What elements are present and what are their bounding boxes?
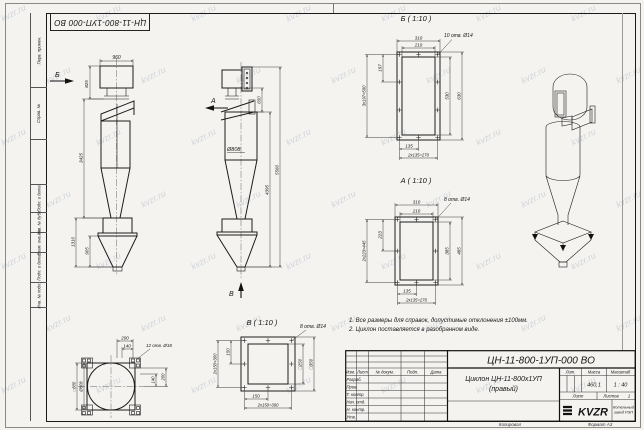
sheets-label: Листов	[602, 394, 619, 399]
dim-label: 210	[412, 209, 421, 214]
dim-label: 150	[252, 394, 260, 399]
col-header: Лист	[356, 370, 368, 375]
base-view-geometry	[78, 355, 144, 418]
dim-label: 630	[457, 92, 462, 100]
section-v-geometry	[241, 337, 295, 391]
dim-label: 905	[85, 247, 90, 255]
dim-label: 310	[413, 200, 421, 205]
side-view-drawing: Ø808 650 4395 5560 В	[200, 50, 295, 305]
dim-label: 150	[226, 348, 231, 356]
dim-label: 140	[123, 344, 131, 349]
dim-label: 197	[378, 64, 383, 72]
dim-label: 135	[405, 144, 413, 149]
logo-text: KVZR	[578, 407, 608, 419]
technical-notes: 1. Все размеры для справок, допустимые о…	[349, 317, 559, 334]
col-header: № докум.	[375, 370, 393, 375]
isometric-view	[515, 55, 640, 295]
section-title: А ( 1:10 )	[400, 176, 432, 185]
holes-note: 12 отв. Ø18	[146, 343, 172, 348]
company-logo: KVZR	[563, 407, 608, 419]
mass-header: Масса	[588, 370, 601, 375]
side-view-dimensions: 650 4395 5560	[242, 67, 282, 267]
dim-label: 223	[378, 231, 383, 240]
frame-box-label: Справ. №	[37, 104, 42, 123]
view-arrow-b: Б	[50, 72, 74, 84]
dim-label: 210	[414, 43, 423, 48]
dim-label: 3x197=590	[362, 85, 367, 107]
drawing-name-line2: (правый)	[489, 385, 518, 393]
base-top-view-drawing: 200 140 12 отв. Ø18 140 200 □800 Ø808	[70, 322, 188, 426]
filing-stamp: ЦН-11-800-1УП-000 ВО	[50, 13, 150, 31]
isometric-geometry	[532, 74, 595, 267]
dim-label: 960	[112, 55, 121, 61]
front-view-geometry	[98, 58, 137, 276]
dim-label: 1310	[71, 236, 76, 247]
dim-label: 2x135=270	[405, 298, 428, 303]
format-label: Формат А3	[560, 422, 640, 427]
row-label: Нач. отд.	[347, 400, 366, 405]
row-label: Н. контр.	[347, 407, 366, 412]
dim-label: 385	[445, 247, 450, 255]
note-line-2: 2. Циклон поставляется в разобранном вид…	[349, 326, 559, 335]
dim-label: 2x150=300	[213, 353, 218, 376]
dim-label: 140	[151, 376, 156, 384]
view-arrow-label: В	[229, 291, 234, 298]
frame-box-inv-podl: Инв. № подл.	[31, 283, 47, 308]
row-label: Утв.	[347, 415, 357, 420]
section-a-dimensions: 310 210 223 2x223=445 385 485 135 2x135=…	[362, 197, 471, 305]
dim-label: 2x223=445	[362, 240, 367, 263]
dim-label: 200	[120, 336, 129, 341]
col-header: Изм.	[346, 370, 355, 375]
section-b-drawing: Б ( 1:10 ) 310 210 197 3x197=590 530 630…	[358, 8, 483, 166]
drawing-name-line1: Циклон ЦН-11-800х1УП	[465, 376, 543, 383]
dim-label: 310	[415, 36, 423, 41]
section-v-drawing: В ( 1:10 ) 150 2x150=300 150 2x150=300 □…	[210, 315, 348, 427]
holes-note: 10 отв. Ø14	[444, 33, 473, 39]
section-a-geometry	[395, 217, 438, 285]
col-header: Дата	[429, 370, 442, 375]
dim-label: 2x150=300	[257, 403, 280, 408]
title-block: ЦН-11-800-1УП-000 ВО Изм. Лист № докум. …	[345, 350, 636, 422]
fold-tick	[333, 3, 334, 13]
dim-label: 200	[161, 373, 166, 382]
col-header: Подп.	[407, 370, 418, 375]
scale-value: 1 : 40	[614, 383, 629, 389]
note-line-1: 1. Все размеры для справок, допустимые о…	[349, 317, 559, 326]
view-arrow-label: Б	[55, 72, 60, 79]
frame-box-label: Инв. № подл.	[37, 282, 42, 308]
row-label: Пров.	[347, 385, 358, 390]
side-view-geometry: Ø808	[217, 62, 257, 278]
view-arrow-v: В	[229, 282, 244, 298]
frame-box-blank-bottom	[31, 308, 47, 421]
front-view-dimensions: 960 825 3425 1310 905	[71, 55, 134, 267]
lit-header: Лит.	[565, 370, 576, 375]
dim-label: Ø808	[79, 381, 84, 393]
body-diameter-label: Ø808	[226, 147, 241, 153]
dim-label: 5560	[275, 164, 280, 175]
frame-box-label: Подп. и дата	[37, 185, 42, 211]
section-a-drawing: А ( 1:10 ) 310 210 223 2x223=445 385 485…	[358, 170, 483, 320]
row-label: Разраб.	[347, 377, 362, 382]
frame-box-label: Подп. и дата	[37, 254, 42, 280]
dim-label: □800	[72, 381, 77, 391]
filing-stamp-text: ЦН-11-800-1УП-000 ВО	[54, 18, 146, 27]
dim-label: 3425	[79, 152, 84, 163]
frame-box-label: Взам. инв. №	[37, 230, 42, 256]
section-title: Б ( 1:10 )	[401, 14, 432, 23]
sheets-value: 1	[628, 394, 630, 399]
dim-label: 650	[257, 96, 262, 104]
frame-box-label: Перв. примен.	[37, 36, 42, 64]
dim-label: 2x135=270	[407, 153, 430, 158]
company-name-line2: завод РЭП	[613, 411, 633, 415]
section-b-geometry	[397, 52, 440, 140]
dim-label: 825	[84, 80, 89, 88]
dim-label: 530	[445, 92, 450, 100]
dim-label: □350	[309, 358, 314, 369]
row-label: Т. контр.	[347, 392, 365, 397]
dim-label: □250	[298, 358, 303, 369]
dim-label: 485	[457, 247, 462, 255]
scale-header: Масштаб	[611, 370, 631, 375]
sheet-label: Лист	[572, 394, 584, 399]
doc-number: ЦН-11-800-1УП-000 ВО	[487, 356, 595, 367]
mass-value: 460,1	[587, 383, 601, 389]
holes-note: 8 отв. Ø14	[444, 197, 470, 203]
dim-label: 135	[403, 289, 411, 294]
section-title: В ( 1:10 )	[247, 318, 278, 327]
holes-note: 8 отв. Ø14	[300, 324, 326, 330]
dim-label: 4395	[265, 184, 270, 195]
company-name-line1: Котельный	[613, 406, 635, 410]
copied-label: Копировал	[470, 422, 550, 427]
